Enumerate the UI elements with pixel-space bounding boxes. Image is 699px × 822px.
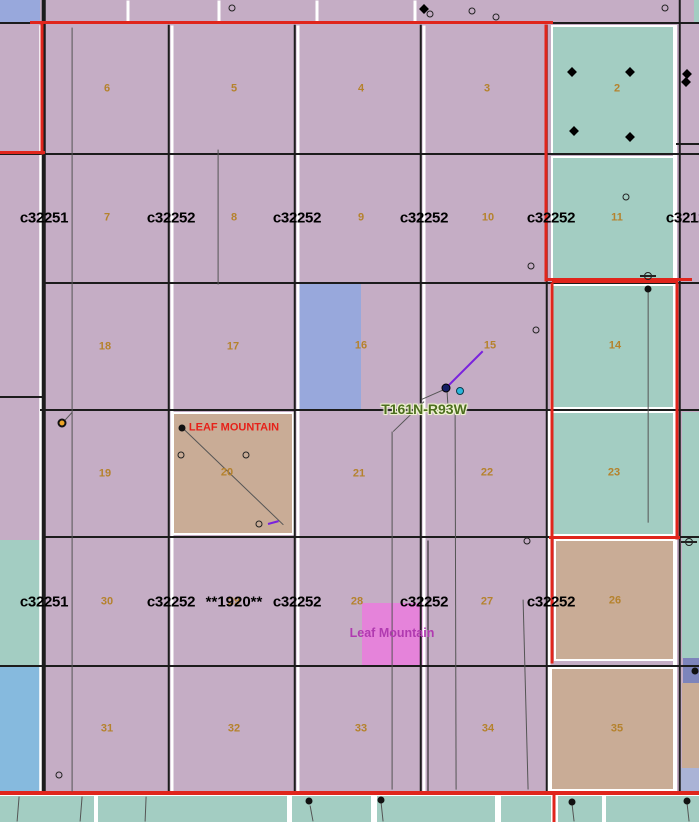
well-marker-circle[interactable]	[662, 5, 669, 12]
well-marker-navy[interactable]	[442, 384, 451, 393]
township-label: T161N-R93W	[381, 402, 467, 416]
section-number-label: 17	[227, 342, 239, 353]
section-number-label: 30	[101, 597, 113, 608]
adjacent-section-fill	[558, 796, 602, 822]
well-marker-circle[interactable]	[528, 263, 535, 270]
section-number-label: 11	[611, 213, 623, 224]
year-label: **1920**	[206, 595, 263, 610]
section-number-label: 31	[101, 724, 113, 735]
place-label-leaf-mountain: LEAF MOUNTAIN	[189, 423, 279, 434]
grid-line	[168, 25, 170, 793]
section-number-label: 3	[484, 84, 490, 95]
survey-line	[647, 289, 648, 523]
boundary-line	[41, 22, 44, 154]
section-number-label: 34	[482, 724, 494, 735]
grid-line	[428, 540, 429, 793]
section-16-overlay-fill	[298, 284, 361, 409]
well-marker-circle[interactable]	[533, 327, 540, 334]
section-number-label: 5	[231, 84, 237, 95]
plat-map-canvas[interactable]: 6543278910111817161514192021222330292827…	[0, 0, 699, 822]
case-number-label[interactable]: c32252	[147, 595, 195, 610]
well-marker-circle[interactable]	[56, 772, 63, 779]
section-number-label: 7	[104, 213, 110, 224]
section-number-label: 26	[609, 596, 621, 607]
boundary-line	[549, 536, 680, 539]
well-marker-dot[interactable]	[692, 668, 699, 675]
case-number-label[interactable]: c32252	[147, 211, 195, 226]
well-marker-dot[interactable]	[645, 286, 652, 293]
well-marker-circle[interactable]	[623, 194, 630, 201]
adjacent-section-fill	[377, 796, 495, 822]
section-number-label: 16	[355, 341, 367, 352]
section-number-label: 28	[351, 597, 363, 608]
section-number-label: 4	[358, 84, 364, 95]
section-number-label: 9	[358, 213, 364, 224]
section-number-label: 2	[614, 84, 620, 95]
boundary-line	[545, 24, 548, 281]
section-number-label: 35	[611, 724, 623, 735]
section-number-label: 14	[609, 341, 621, 352]
section-number-label: 19	[99, 469, 111, 480]
adjacent-section-fill	[501, 796, 551, 822]
section-number-label: 10	[482, 213, 494, 224]
well-marker-circle-bar[interactable]	[640, 272, 656, 280]
adjacent-section-fill	[0, 666, 43, 792]
section-number-label: 20	[221, 468, 233, 479]
section-number-label: 6	[104, 84, 110, 95]
well-marker-dot[interactable]	[306, 798, 313, 805]
well-marker-circle[interactable]	[229, 5, 236, 12]
well-marker-dot[interactable]	[378, 797, 385, 804]
case-number-label[interactable]: c32251	[20, 211, 68, 226]
case-number-label[interactable]: c32252	[527, 211, 575, 226]
section-number-label: 33	[355, 724, 367, 735]
adjacent-section-fill	[292, 796, 371, 822]
boundary-line	[676, 282, 679, 539]
adjacent-section-fill	[682, 683, 699, 768]
marker-circle	[685, 538, 693, 546]
section-number-label: 18	[99, 342, 111, 353]
well-marker-dot[interactable]	[569, 799, 576, 806]
field-label-leaf-mountain: Leaf Mountain	[350, 627, 435, 640]
adjacent-section-fill	[694, 0, 699, 23]
well-marker-circle-bar[interactable]	[681, 538, 697, 546]
well-marker-dot[interactable]	[179, 425, 186, 432]
survey-line	[71, 28, 72, 792]
well-marker-circle[interactable]	[469, 8, 476, 15]
survey-line	[217, 150, 218, 285]
boundary-line	[0, 791, 699, 795]
well-marker-circle[interactable]	[178, 452, 185, 459]
case-number-label[interactable]: c32252	[400, 595, 448, 610]
well-marker-cyan[interactable]	[456, 387, 464, 395]
adjacent-section-fill	[680, 768, 699, 793]
boundary-line	[552, 281, 678, 284]
marker-circle	[644, 272, 652, 280]
case-number-label[interactable]: c32252	[273, 211, 321, 226]
grid-line	[0, 665, 699, 667]
section-number-label: 21	[353, 469, 365, 480]
section-number-label: 8	[231, 213, 237, 224]
section-number-label: 27	[481, 597, 493, 608]
well-marker-orange[interactable]	[58, 419, 67, 428]
survey-line	[391, 432, 392, 790]
grid-line	[679, 0, 681, 793]
grid-line	[40, 409, 699, 411]
well-marker-circle[interactable]	[493, 14, 500, 21]
adjacent-section-fill	[682, 412, 699, 658]
boundary-line	[553, 793, 556, 822]
well-marker-circle[interactable]	[243, 452, 250, 459]
well-marker-circle[interactable]	[524, 538, 531, 545]
section-number-label: 23	[608, 468, 620, 479]
well-marker-dot[interactable]	[684, 798, 691, 805]
case-number-label[interactable]: c32252	[273, 595, 321, 610]
section-number-label: 22	[481, 468, 493, 479]
grid-line	[0, 153, 699, 155]
case-number-label[interactable]: c3212	[666, 211, 699, 226]
case-number-label[interactable]: c32252	[400, 211, 448, 226]
grid-line	[676, 143, 699, 145]
well-marker-circle[interactable]	[256, 521, 263, 528]
section-number-label: 32	[228, 724, 240, 735]
well-marker-circle[interactable]	[427, 11, 434, 18]
boundary-line	[30, 21, 553, 24]
case-number-label[interactable]: c32252	[527, 595, 575, 610]
case-number-label[interactable]: c32251	[20, 595, 68, 610]
grid-line	[294, 25, 296, 793]
section-number-label: 15	[484, 341, 496, 352]
boundary-line	[0, 151, 45, 154]
grid-line	[0, 396, 44, 398]
adjacent-section-fill	[98, 796, 287, 822]
